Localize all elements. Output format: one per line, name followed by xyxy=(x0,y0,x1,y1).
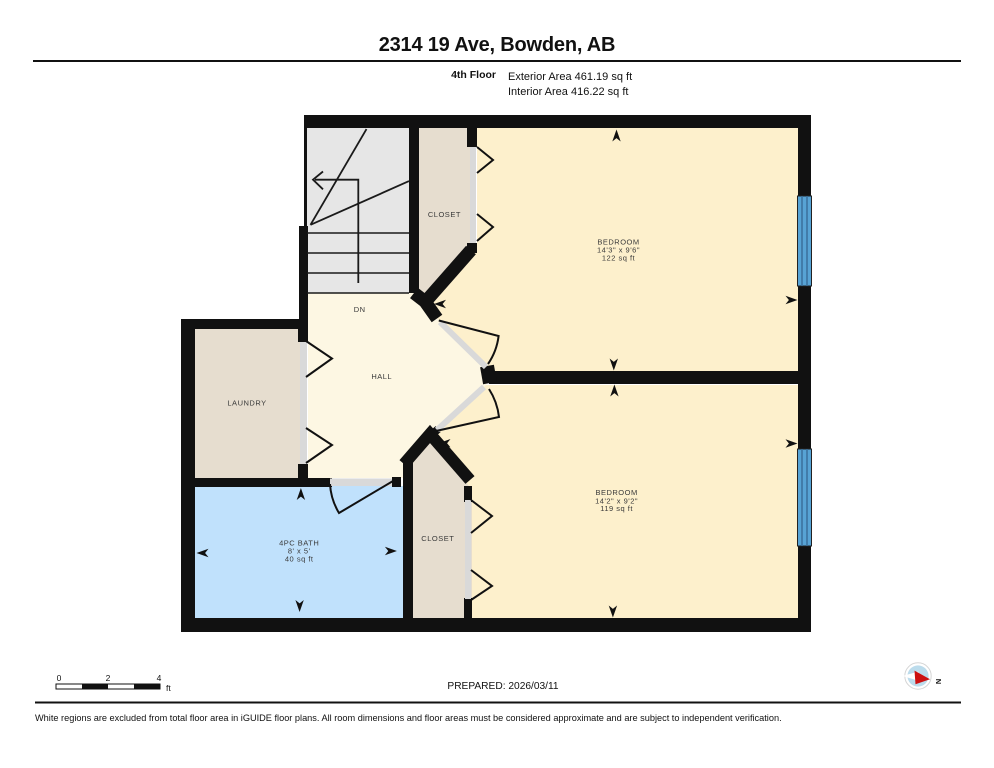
svg-text:2: 2 xyxy=(106,673,111,683)
svg-text:0: 0 xyxy=(57,673,62,683)
svg-text:LAUNDRY: LAUNDRY xyxy=(227,399,266,408)
svg-text:122 sq ft: 122 sq ft xyxy=(602,254,636,263)
svg-text:HALL: HALL xyxy=(371,372,392,381)
svg-text:DN: DN xyxy=(354,305,366,314)
svg-text:ft: ft xyxy=(166,683,171,693)
svg-text:CLOSET: CLOSET xyxy=(428,210,461,219)
svg-text:119 sq ft: 119 sq ft xyxy=(600,504,633,513)
svg-text:PREPARED: 2026/03/11: PREPARED: 2026/03/11 xyxy=(447,681,559,692)
svg-text:N: N xyxy=(934,679,943,684)
svg-text:CLOSET: CLOSET xyxy=(421,534,454,543)
svg-text:4: 4 xyxy=(157,673,162,683)
svg-text:40 sq ft: 40 sq ft xyxy=(285,555,314,564)
svg-text:White regions are excluded fro: White regions are excluded from total fl… xyxy=(35,713,782,723)
